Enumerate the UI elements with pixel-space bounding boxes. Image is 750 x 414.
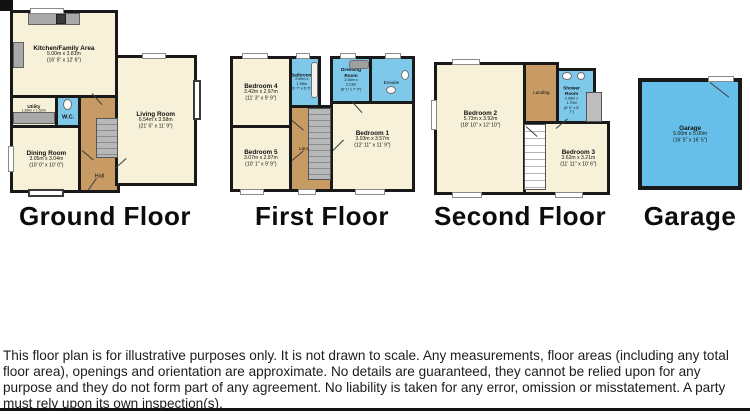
room-metric: 3.62m x 3.21m — [560, 156, 596, 162]
room-label: Dressing Room 2.46m x 2.13m (8' 1" x 7' … — [340, 67, 362, 93]
room-imperial: (16' 5" x 16' 5") — [673, 138, 707, 144]
room-imperial: (6' 9" x 5' 7") — [564, 106, 581, 115]
room-name: Kitchen/Family Area — [33, 44, 94, 52]
bathtub-icon — [311, 62, 318, 98]
basin-icon — [401, 70, 409, 80]
room-name: Ensuite — [384, 80, 400, 86]
toilet-icon — [63, 99, 72, 110]
toilet-icon — [386, 86, 396, 94]
room-label: Garage 5.00m x 5.00m (16' 5" x 16' 5") — [673, 124, 707, 145]
room-metric: 3.05m x 3.04m — [26, 157, 66, 163]
room-label: Bedroom 5 3.07m x 2.97m (10' 1" x 9' 9") — [244, 148, 278, 169]
wardrobe-icon — [349, 60, 369, 69]
room-imperial: (11' 11" x 10' 6") — [560, 162, 596, 168]
room-metric: 3.42m x 2.97m — [244, 90, 278, 96]
room-living: Living Room 6.54m x 3.58m (21' 5" x 11' … — [115, 55, 197, 186]
room-imperial: (21' 5" x 11' 9") — [137, 124, 176, 130]
room-name: W.C. — [62, 113, 74, 120]
room-imperial: (6' 7" x 6' 6") — [291, 87, 313, 92]
room-name: Landing — [533, 90, 550, 96]
room-metric: 2.46m x 2.13m — [340, 79, 362, 88]
kitchen-side-counter — [13, 42, 24, 68]
shower-cubicle — [586, 92, 602, 122]
toilet-icon — [562, 72, 572, 80]
garage-title: Garage — [630, 201, 750, 232]
window — [340, 53, 356, 59]
window — [385, 53, 401, 59]
window — [431, 100, 437, 130]
room-label: Landing — [533, 90, 550, 96]
window — [8, 146, 14, 172]
room-imperial: (18' 10" x 12' 10") — [460, 123, 500, 129]
room-label: Dining Room 3.05m x 3.04m (10' 0" x 10' … — [26, 149, 66, 170]
hob — [56, 14, 66, 24]
room-label: Bedroom 1 3.93m x 3.57m (12' 11" x 11' 9… — [354, 129, 390, 150]
room-dining: Dining Room 3.05m x 3.04m (10' 0" x 10' … — [10, 125, 82, 193]
room-name: Garage — [673, 124, 707, 132]
room-label: Bathroom 2.00m x 1.98m (6' 7" x 6' 6") — [291, 72, 313, 92]
room-imperial: (12' 11" x 11' 9") — [354, 143, 390, 149]
window — [142, 53, 166, 59]
window — [298, 189, 316, 195]
room-name: Shower Room — [564, 85, 581, 97]
legal-text-block: This floor plan is for illustrative purp… — [3, 348, 749, 414]
disclaimer-text: This floor plan is for illustrative purp… — [3, 348, 749, 412]
window — [452, 59, 480, 65]
second-floor-title: Second Floor — [425, 201, 615, 232]
staircase — [96, 118, 118, 158]
room-metric: 5.00m x 5.00m — [673, 132, 707, 138]
room-label: W.C. — [62, 113, 74, 120]
window — [30, 8, 64, 14]
room-label: Bedroom 3 3.62m x 3.21m (11' 11" x 10' 6… — [560, 148, 596, 169]
room-imperial: (11' 3" x 9' 9") — [244, 96, 278, 102]
room-imperial: (10' 1" x 9' 9") — [244, 162, 278, 168]
room-bedroom1: Bedroom 1 3.93m x 3.57m (12' 11" x 11' 9… — [330, 101, 415, 192]
room-imperial: (10' 0" x 10' 0") — [26, 163, 66, 169]
garage-door-opening — [708, 76, 734, 82]
room-imperial: (8' 1" x 7' 0") — [340, 88, 362, 93]
room-bedroom4: Bedroom 4 3.42m x 2.97m (11' 3" x 9' 9") — [230, 56, 292, 128]
first-floor-title: First Floor — [232, 201, 412, 232]
window — [296, 53, 310, 59]
room-label: Kitchen/Family Area 5.00m x 3.81m (16' 5… — [33, 44, 94, 65]
window — [242, 53, 268, 59]
basin-icon — [577, 72, 585, 80]
staircase — [308, 108, 331, 180]
room-name: Bedroom 3 — [560, 148, 596, 156]
room-label: Bedroom 4 3.42m x 2.97m (11' 3" x 9' 9") — [244, 82, 278, 103]
room-bedroom5: Bedroom 5 3.07m x 2.97m (10' 1" x 9' 9") — [230, 125, 292, 192]
room-label: Ensuite — [384, 80, 400, 86]
window — [452, 192, 482, 198]
floorplan-image: Kitchen/Family Area 5.00m x 3.81m (16' 5… — [0, 0, 750, 414]
room-metric: 2.06m x 1.70m — [564, 97, 581, 106]
utility-counter — [13, 112, 55, 124]
room-label: Bedroom 2 5.73m x 3.92m (18' 10" x 12' 1… — [460, 109, 500, 130]
room-name: Dining Room — [26, 149, 66, 157]
room-ensuite: Ensuite — [369, 56, 415, 104]
window — [355, 189, 385, 195]
room-imperial: (16' 5" x 12' 6") — [33, 58, 94, 64]
bay-window — [193, 80, 201, 120]
room-metric: 2.00m x 1.98m — [291, 78, 313, 87]
room-name: Bedroom 4 — [244, 82, 278, 90]
room-label: Living Room 6.54m x 3.58m (21' 5" x 11' … — [137, 110, 176, 131]
room-bedroom2: Bedroom 2 5.73m x 3.92m (18' 10" x 12' 1… — [434, 62, 526, 195]
window — [240, 189, 264, 195]
ground-floor-title: Ground Floor — [5, 201, 205, 232]
room-metric: 5.00m x 3.81m — [33, 52, 94, 58]
window — [555, 192, 583, 198]
room-label: Shower Room 2.06m x 1.70m (6' 9" x 5' 7"… — [564, 85, 581, 115]
kitchen-counter — [28, 13, 80, 25]
room-landing-second: Landing — [523, 62, 559, 124]
bay-window — [28, 189, 64, 197]
